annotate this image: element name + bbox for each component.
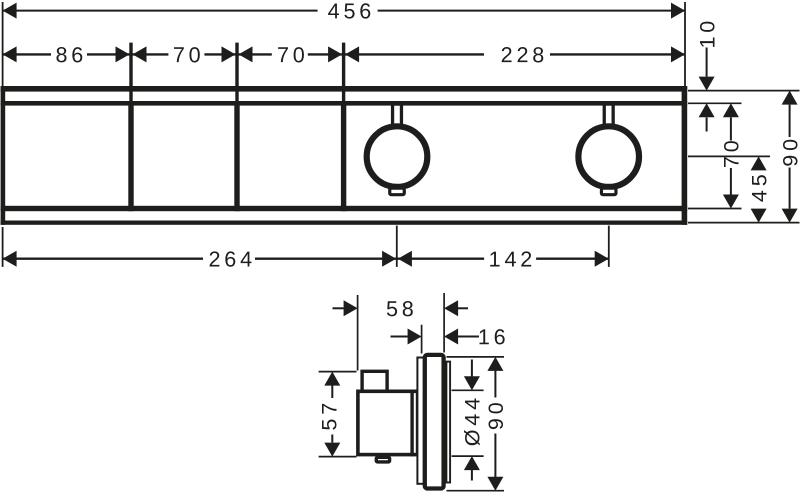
- svg-text:90: 90: [777, 135, 800, 167]
- svg-text:Ø44: Ø44: [460, 394, 485, 446]
- svg-text:456: 456: [328, 0, 375, 23]
- svg-text:142: 142: [489, 246, 536, 271]
- svg-text:45: 45: [746, 170, 771, 202]
- svg-text:70: 70: [173, 42, 205, 67]
- svg-text:10: 10: [694, 17, 719, 49]
- svg-text:57: 57: [316, 399, 341, 431]
- svg-text:90: 90: [483, 398, 508, 430]
- svg-text:16: 16: [478, 324, 510, 349]
- svg-text:70: 70: [719, 136, 744, 168]
- svg-text:264: 264: [208, 246, 255, 271]
- svg-text:86: 86: [55, 42, 87, 67]
- svg-text:58: 58: [386, 296, 418, 321]
- svg-text:228: 228: [501, 42, 548, 67]
- svg-text:70: 70: [277, 42, 309, 67]
